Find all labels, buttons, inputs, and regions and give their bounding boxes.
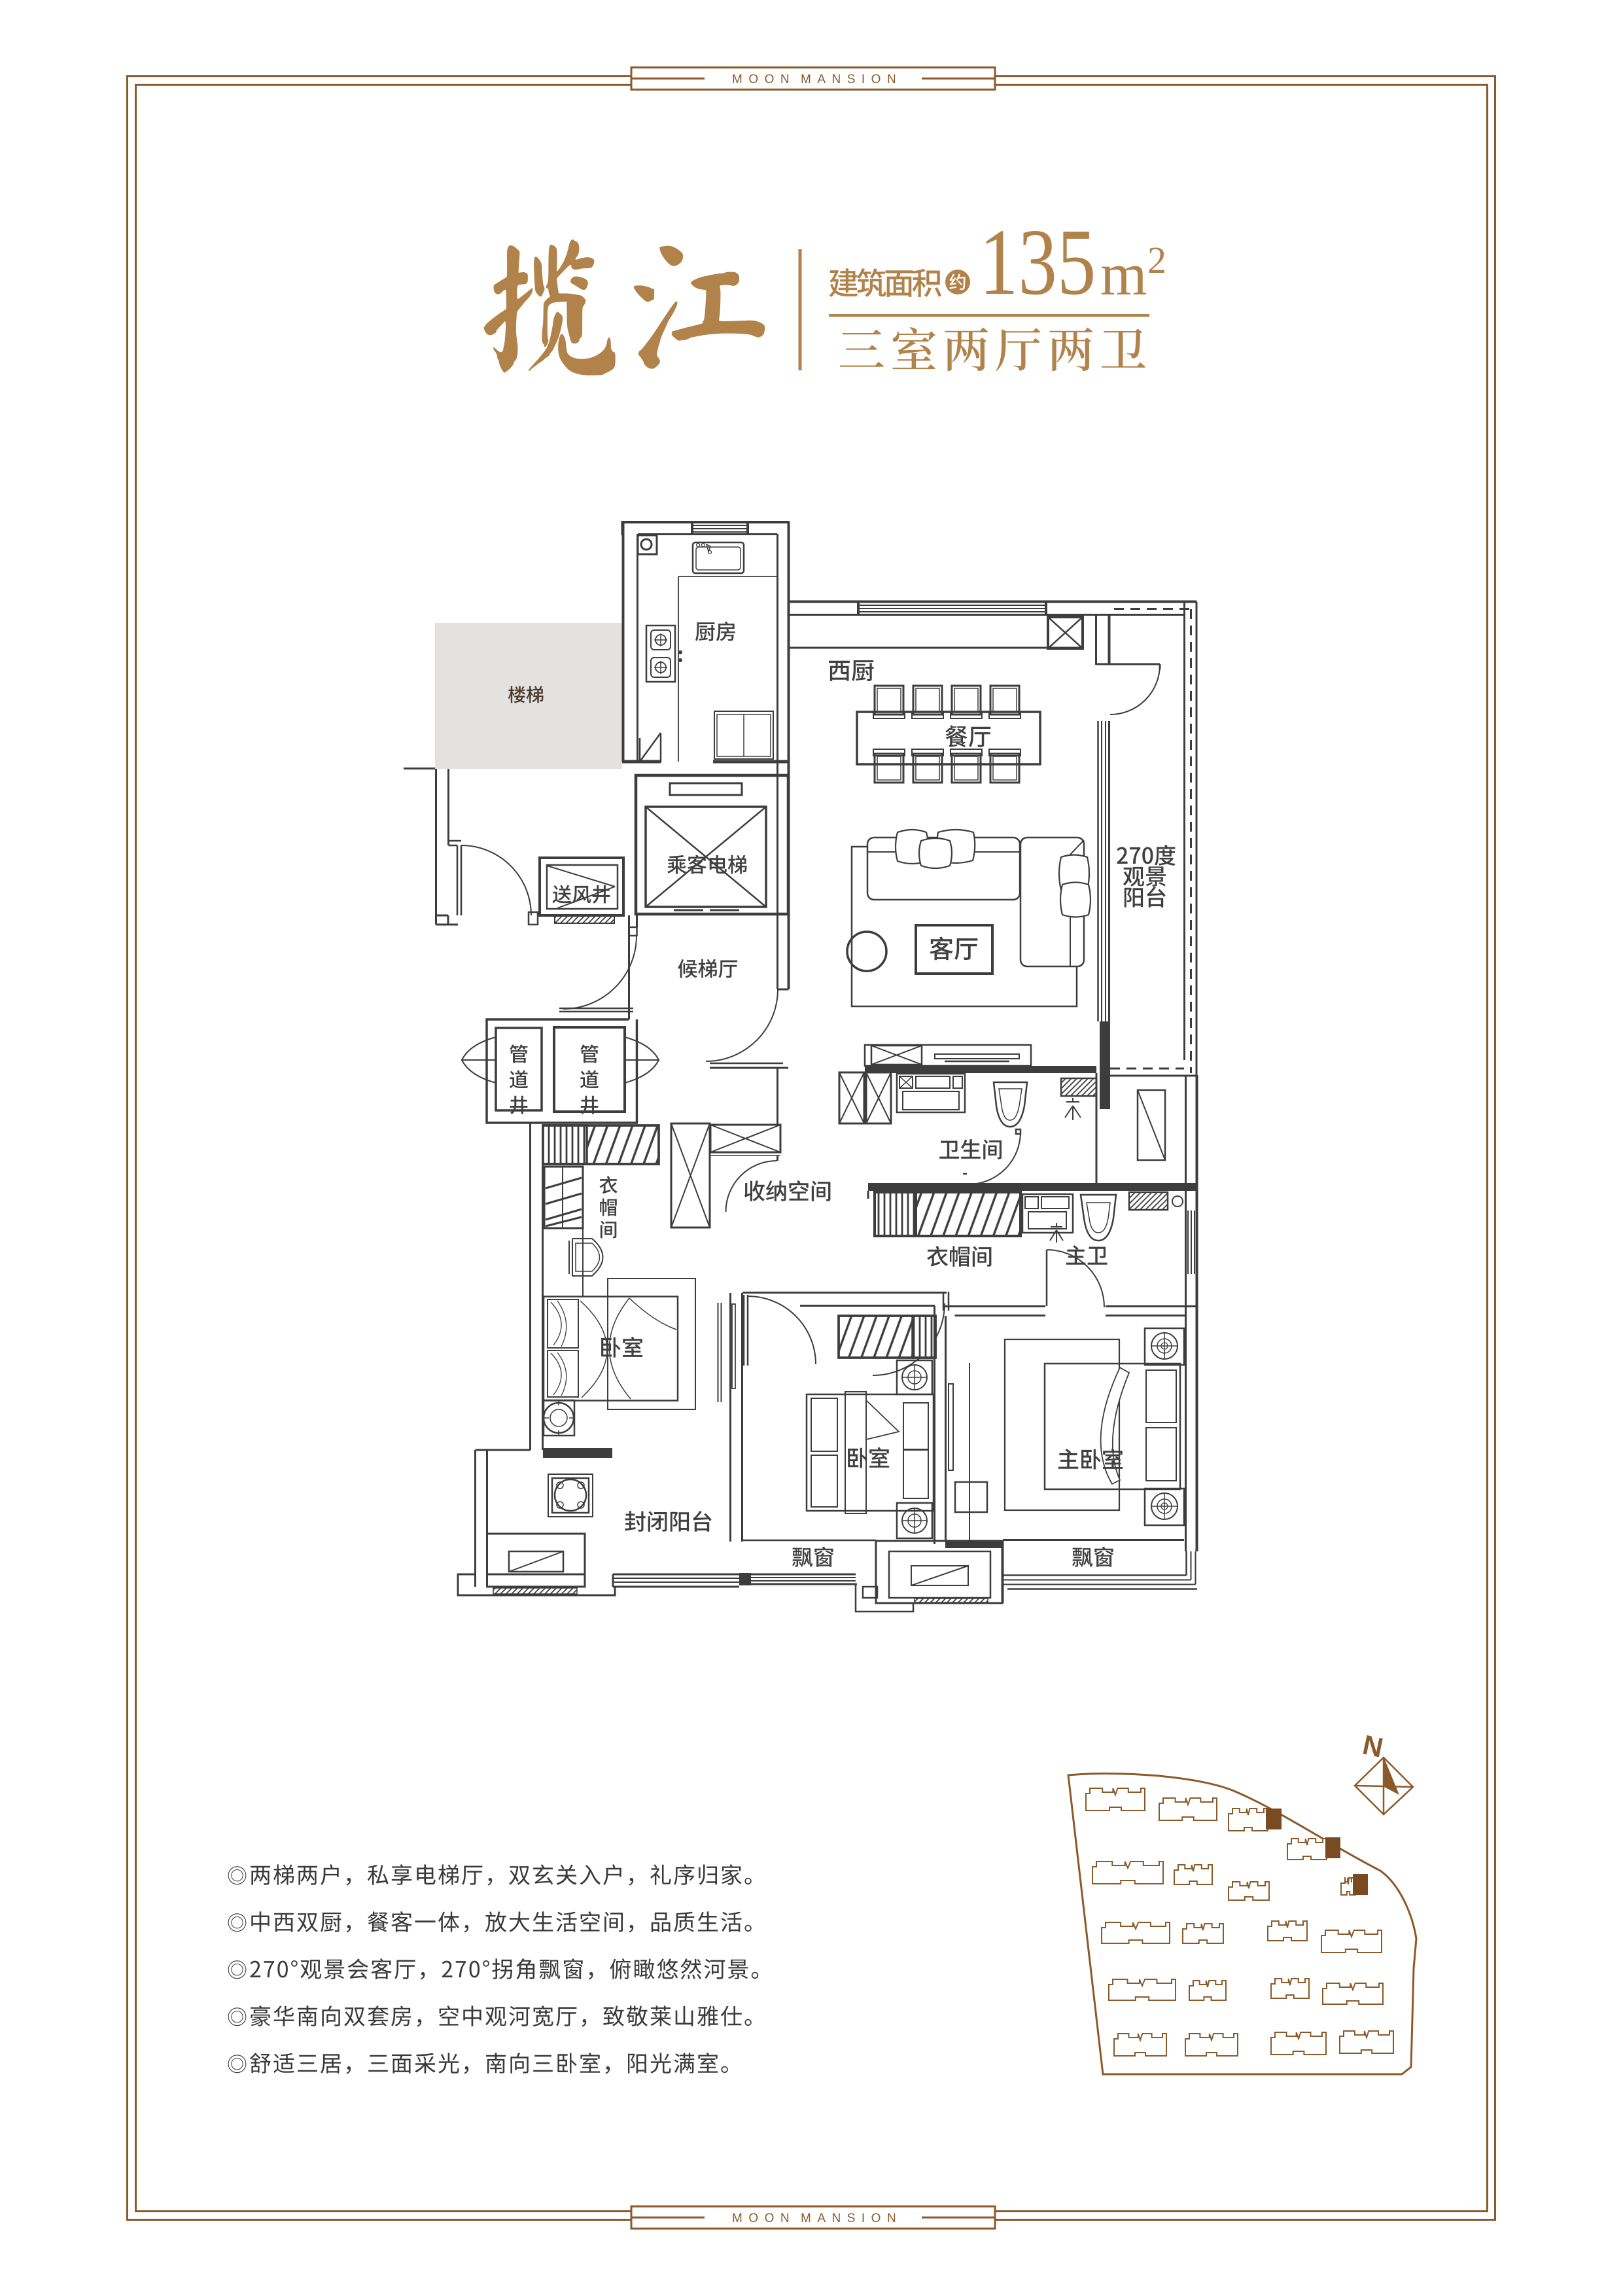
- svg-text:MOON: MOON: [732, 73, 795, 86]
- svg-text:2: 2: [1147, 239, 1166, 281]
- svg-text:m: m: [1100, 241, 1147, 308]
- svg-text:135: 135: [979, 209, 1096, 315]
- svg-text:MANSION: MANSION: [801, 2212, 902, 2225]
- svg-text:MANSION: MANSION: [801, 73, 902, 86]
- svg-text:MOON: MOON: [732, 2212, 795, 2225]
